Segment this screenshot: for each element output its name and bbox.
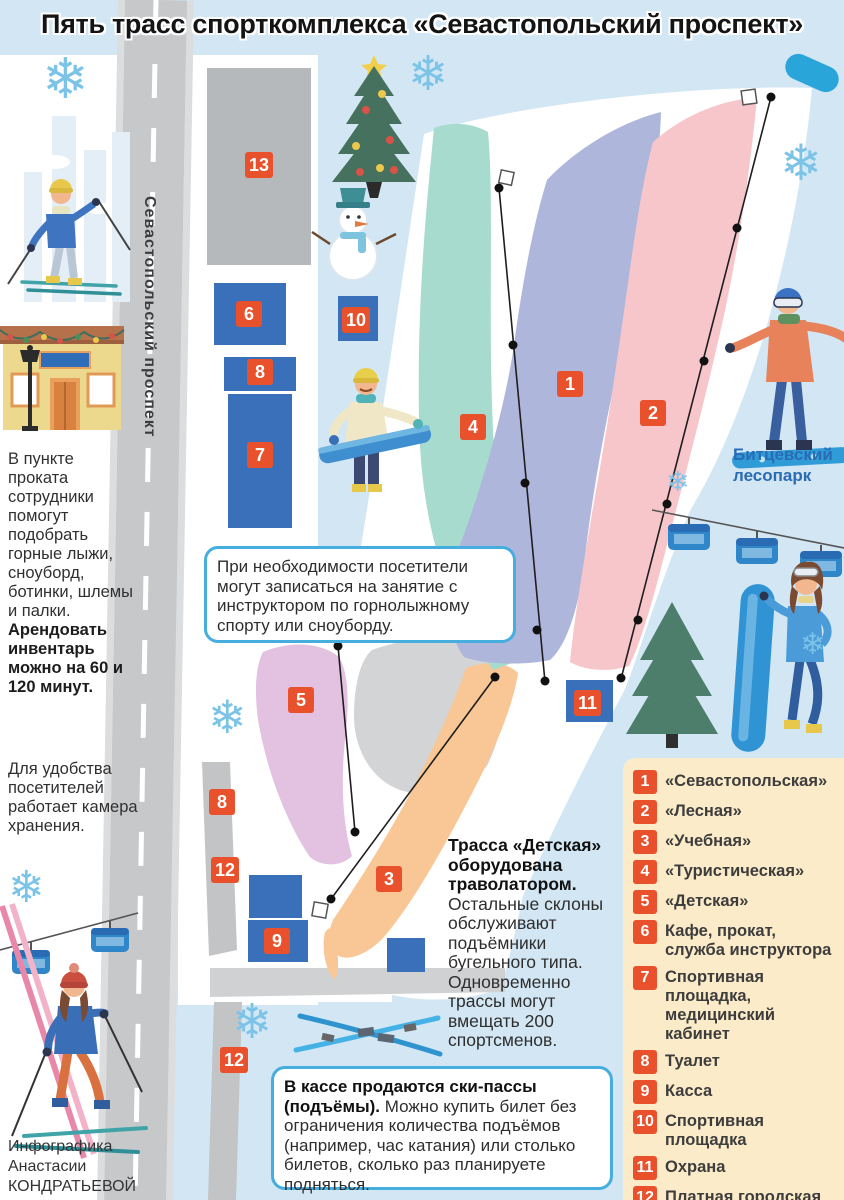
legend-item-11: 11 Охрана xyxy=(633,1156,836,1180)
legend-item-number: 5 xyxy=(633,890,657,914)
map-marker-11: 11 xyxy=(574,690,601,716)
snowflake-icon: ❄ xyxy=(232,998,272,1046)
map-marker-8: 8 xyxy=(247,359,273,385)
tickets-callout: В кассе продаются ски-пассы (подъёмы). М… xyxy=(271,1066,613,1190)
map-marker-9: 9 xyxy=(264,928,290,954)
legend-item-label: «Лесная» xyxy=(665,800,742,824)
legend-item-number: 11 xyxy=(633,1156,657,1180)
snowflake-icon: ❄ xyxy=(800,630,825,660)
legend-item-number: 2 xyxy=(633,800,657,824)
legend-item-6: 6 Кафе, прокат, служба инструктора xyxy=(633,920,836,960)
legend-item-label: Спортивная площадка, медицинский кабинет xyxy=(665,966,836,1044)
legend-item-label: Платная городская парковка xyxy=(665,1186,836,1200)
legend-item-label: Касса xyxy=(665,1080,712,1104)
map-legend: 1 «Севастопольская» 2 «Лесная» 3 «Учебна… xyxy=(623,758,844,1200)
legend-item-label: Спортивная площадка xyxy=(665,1110,836,1150)
christmas-tree-icon xyxy=(332,55,416,198)
map-marker-12: 12 xyxy=(220,1047,248,1073)
snowflake-icon: ❄ xyxy=(208,694,247,740)
legend-item-number: 12 xyxy=(633,1186,657,1200)
road-name-label: Севастопольский проспект xyxy=(140,196,158,438)
map-marker-10: 10 xyxy=(342,307,370,333)
rental-bold-text: Арендовать инвентарь можно на 60 и 120 м… xyxy=(8,621,123,696)
legend-item-8: 8 Туалет xyxy=(633,1050,836,1074)
detskaya-text: Остальные склоны обслуживают подъёмники … xyxy=(448,894,603,1051)
legend-item-4: 4 «Туристическая» xyxy=(633,860,836,884)
legend-item-label: «Туристическая» xyxy=(665,860,804,884)
legend-item-number: 9 xyxy=(633,1080,657,1104)
legend-item-number: 8 xyxy=(633,1050,657,1074)
legend-item-number: 10 xyxy=(633,1110,657,1134)
legend-item-label: «Учебная» xyxy=(665,830,751,854)
legend-item-number: 7 xyxy=(633,966,657,990)
legend-item-2: 2 «Лесная» xyxy=(633,800,836,824)
rental-info-block: В пункте проката сотрудники помогут подо… xyxy=(8,450,138,697)
page-title: Пять трасс спорткомплекса «Севастопольск… xyxy=(0,9,844,40)
snowman-icon xyxy=(312,188,396,280)
crossed-skis-icon xyxy=(296,1016,440,1054)
instructor-callout: При необходимости посетители могут запис… xyxy=(204,546,516,643)
legend-item-number: 3 xyxy=(633,830,657,854)
storage-text: Для удобства посетителей работает камера… xyxy=(8,760,138,835)
building-kassa-a xyxy=(249,875,302,918)
snowflake-icon: ❄ xyxy=(408,50,448,98)
detskaya-info-block: Трасса «Детская» оборудована траволаторо… xyxy=(448,836,630,1051)
map-marker-13: 13 xyxy=(245,152,273,178)
map-marker-4: 4 xyxy=(460,414,486,440)
legend-item-label: «Севастопольская» xyxy=(665,770,827,794)
legend-item-9: 9 Касса xyxy=(633,1080,836,1104)
instructor-callout-text: При необходимости посетители могут запис… xyxy=(217,557,469,635)
snowflake-icon: ❄ xyxy=(8,866,45,910)
legend-item-number: 4 xyxy=(633,860,657,884)
legend-item-label: Охрана xyxy=(665,1156,725,1180)
rental-text: В пункте проката сотрудники помогут подо… xyxy=(8,450,133,620)
shop-building xyxy=(0,326,124,431)
building-small-south xyxy=(387,938,425,972)
storage-info-block: Для удобства посетителей работает камера… xyxy=(8,760,148,836)
map-marker-5: 5 xyxy=(288,687,314,713)
legend-item-10: 10 Спортивная площадка xyxy=(633,1110,836,1150)
legend-item-3: 3 «Учебная» xyxy=(633,830,836,854)
snowflake-icon: ❄ xyxy=(780,138,822,188)
legend-item-1: 1 «Севастопольская» xyxy=(633,770,836,794)
legend-item-number: 1 xyxy=(633,770,657,794)
detskaya-bold-text: Трасса «Детская» оборудована траволаторо… xyxy=(448,835,601,894)
map-marker-12: 12 xyxy=(211,857,239,883)
legend-item-label: «Детская» xyxy=(665,890,748,914)
legend-item-label: Кафе, прокат, служба инструктора xyxy=(665,920,836,960)
legend-list: 1 «Севастопольская» 2 «Лесная» 3 «Учебна… xyxy=(633,770,836,1200)
legend-item-12: 12 Платная городская парковка xyxy=(633,1186,836,1200)
map-marker-1: 1 xyxy=(557,371,583,397)
legend-item-number: 6 xyxy=(633,920,657,944)
map-marker-7: 7 xyxy=(247,442,273,468)
snowflake-icon: ❄ xyxy=(666,468,689,496)
map-marker-8: 8 xyxy=(209,789,235,815)
legend-item-5: 5 «Детская» xyxy=(633,890,836,914)
snowflake-icon: ❄ xyxy=(42,52,89,108)
forest-park-label: Битцевский лесопарк xyxy=(733,444,844,486)
legend-item-7: 7 Спортивная площадка, медицинский кабин… xyxy=(633,966,836,1044)
map-marker-3: 3 xyxy=(376,866,402,892)
infographic-page: ❄ ❄ ❄ ❄ ❄ ❄ ❄ ❄ Пять трасс спорткомплекс… xyxy=(0,0,844,1200)
legend-item-label: Туалет xyxy=(665,1050,720,1074)
map-marker-6: 6 xyxy=(236,301,262,327)
gondola-icon xyxy=(736,531,778,564)
credit-line: Инфографика Анастасии КОНДРАТЬЕВОЙ xyxy=(8,1137,158,1197)
map-marker-2: 2 xyxy=(640,400,666,426)
